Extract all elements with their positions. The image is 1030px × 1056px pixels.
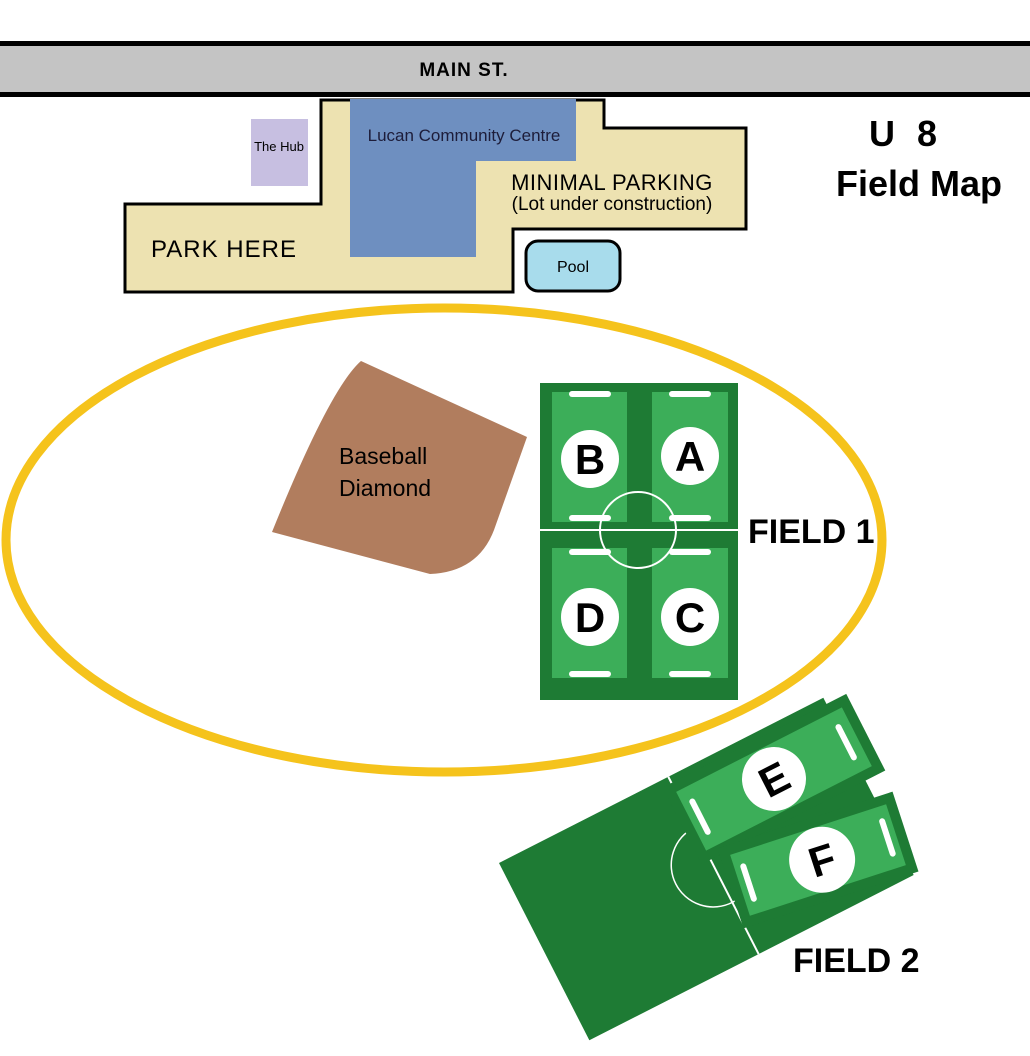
zone-b-label: B <box>575 436 605 483</box>
map-title-line2: Field Map <box>836 163 1002 204</box>
pool-label: Pool <box>557 259 589 276</box>
field-2-label: FIELD 2 <box>793 942 920 980</box>
field-1: B A D C <box>540 383 738 700</box>
goal-line-mark <box>669 549 711 555</box>
field-2: E F <box>499 694 918 1040</box>
zone-c-label: C <box>675 594 705 641</box>
halfway-line <box>540 529 738 531</box>
minimal-parking-note: (Lot under construction) <box>512 194 713 215</box>
main-street-road <box>0 46 1030 92</box>
goal-line-mark <box>569 671 611 677</box>
field-map-page: MAIN ST. PARK HERE MINIMAL PARKING (Lot … <box>0 0 1030 1056</box>
minimal-parking-label: MINIMAL PARKING <box>511 170 713 195</box>
park-here-label: PARK HERE <box>151 236 297 263</box>
map-title-line1: U 8 <box>869 113 943 154</box>
baseball-label-line1: Baseball <box>339 443 427 469</box>
hub-label: The Hub <box>254 139 304 154</box>
baseball-label-line2: Diamond <box>339 475 431 501</box>
goal-line-mark <box>569 391 611 397</box>
road-edge-line-top <box>0 41 1030 46</box>
goal-line-mark <box>669 391 711 397</box>
goal-line-mark <box>569 515 611 521</box>
zone-d-label: D <box>575 594 605 641</box>
field-1-label: FIELD 1 <box>748 513 875 551</box>
community-centre-label: Lucan Community Centre <box>368 126 561 145</box>
map-canvas: MAIN ST. PARK HERE MINIMAL PARKING (Lot … <box>0 0 1030 1056</box>
zone-a-label: A <box>675 433 705 480</box>
goal-line-mark <box>669 671 711 677</box>
main-street-label: MAIN ST. <box>419 60 508 81</box>
road-edge-line-bottom <box>0 92 1030 97</box>
